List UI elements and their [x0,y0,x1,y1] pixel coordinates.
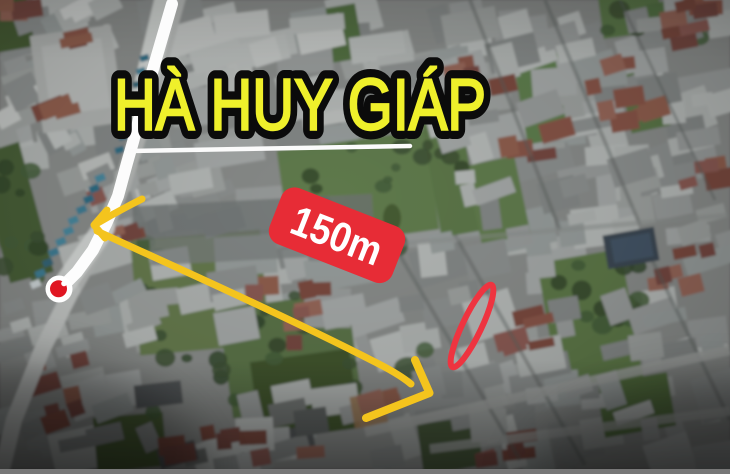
svg-text:HÀ HUY GIÁP: HÀ HUY GIÁP [114,66,486,146]
